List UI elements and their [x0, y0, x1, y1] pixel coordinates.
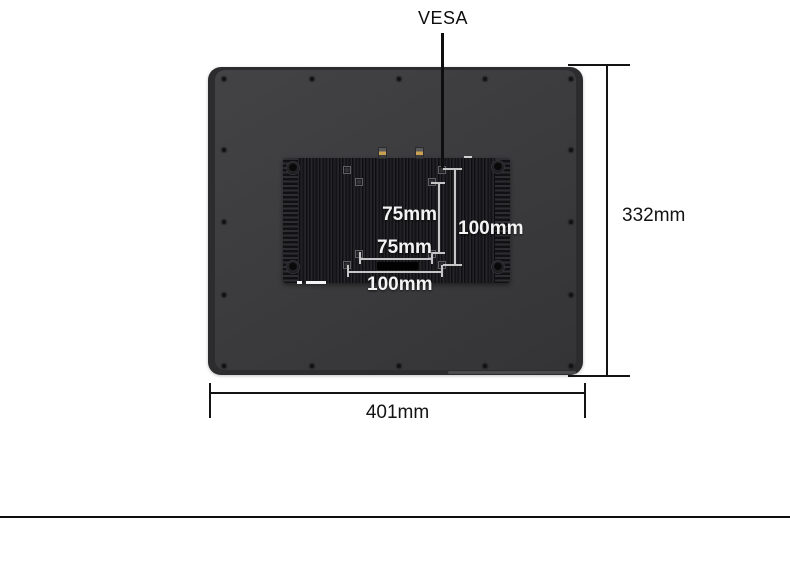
dim-tick-75-vertical-bottom [431, 252, 445, 254]
vesa-pointer-line [441, 33, 444, 168]
dim-line-100-horizontal [348, 271, 443, 273]
heatsink-screw [286, 260, 300, 274]
dim-tick-height-bottom [568, 375, 630, 377]
panel-screw [483, 77, 487, 81]
heatsink-screw [491, 160, 505, 174]
panel-screw [310, 364, 314, 368]
panel-screw [222, 293, 226, 297]
panel-screw [397, 77, 401, 81]
panel-screw [222, 77, 226, 81]
port-marking-dash [306, 281, 326, 284]
dim-tick-100-horizontal-left [347, 265, 349, 277]
panel-screw [310, 77, 314, 81]
dim-tick-100-vertical-top [443, 168, 462, 170]
dim-tick-100-vertical-bottom [443, 264, 462, 266]
dim-line-width [209, 392, 586, 394]
dim-tick-75-horizontal-left [359, 252, 361, 264]
antenna-connector-right [415, 147, 424, 159]
panel-screw [569, 220, 573, 224]
panel-screw [483, 364, 487, 368]
panel-screw [569, 364, 573, 368]
dim-label-100-horizontal: 100mm [367, 274, 433, 296]
panel-screw [569, 148, 573, 152]
vesa-hole-outer [343, 166, 351, 174]
bottom-edge-highlight [448, 371, 576, 374]
panel-screw [397, 364, 401, 368]
panel-screw [222, 148, 226, 152]
heatsink-screw [491, 260, 505, 274]
product-dimension-diagram: VESA 75mm 100mm 75mm [0, 0, 790, 561]
dim-tick-height-top [568, 64, 630, 66]
vesa-hole-inner [355, 178, 363, 186]
panel-screw [569, 293, 573, 297]
port-marking-dot [297, 281, 302, 284]
panel-screw [569, 77, 573, 81]
dim-label-height: 332mm [622, 205, 685, 227]
dim-label-100-vertical: 100mm [458, 218, 524, 240]
top-marking-tick [464, 156, 472, 158]
dim-tick-100-horizontal-right [441, 265, 443, 277]
bottom-divider-line [0, 516, 790, 518]
dim-label-75-horizontal: 75mm [377, 237, 432, 259]
dim-label-width: 401mm [209, 402, 586, 424]
panel-screw [222, 364, 226, 368]
dim-tick-75-vertical-top [431, 182, 445, 184]
dim-line-height [606, 64, 608, 377]
dim-line-100-vertical [454, 169, 456, 266]
vesa-label: VESA [401, 8, 485, 29]
dim-label-75-vertical: 75mm [357, 204, 437, 226]
antenna-connector-left [378, 147, 387, 159]
panel-screw [222, 220, 226, 224]
label-slot [377, 262, 418, 270]
dim-line-75-vertical [438, 183, 440, 253]
heatsink-screw [286, 161, 300, 175]
